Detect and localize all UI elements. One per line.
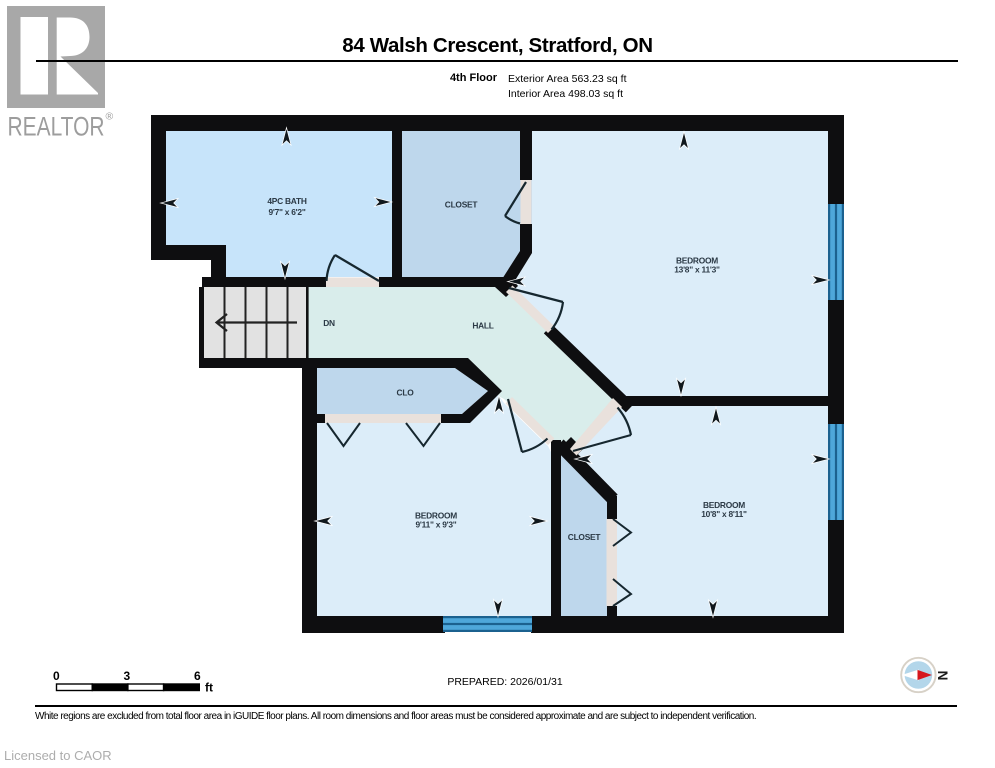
svg-text:10'8" x 8'11": 10'8" x 8'11" xyxy=(701,509,747,519)
svg-text:13'8" x 11'3": 13'8" x 11'3" xyxy=(674,265,720,275)
svg-text:HALL: HALL xyxy=(472,321,493,331)
svg-text:CLOSET: CLOSET xyxy=(568,532,602,542)
svg-text:DN: DN xyxy=(323,318,335,328)
svg-text:9'7" x 6'2": 9'7" x 6'2" xyxy=(268,207,305,217)
svg-text:9'11" x 9'3": 9'11" x 9'3" xyxy=(415,520,456,530)
svg-text:4PC BATH: 4PC BATH xyxy=(267,196,306,206)
svg-text:N: N xyxy=(936,671,951,681)
svg-text:CLO: CLO xyxy=(397,388,415,398)
svg-text:CLOSET: CLOSET xyxy=(445,200,479,210)
